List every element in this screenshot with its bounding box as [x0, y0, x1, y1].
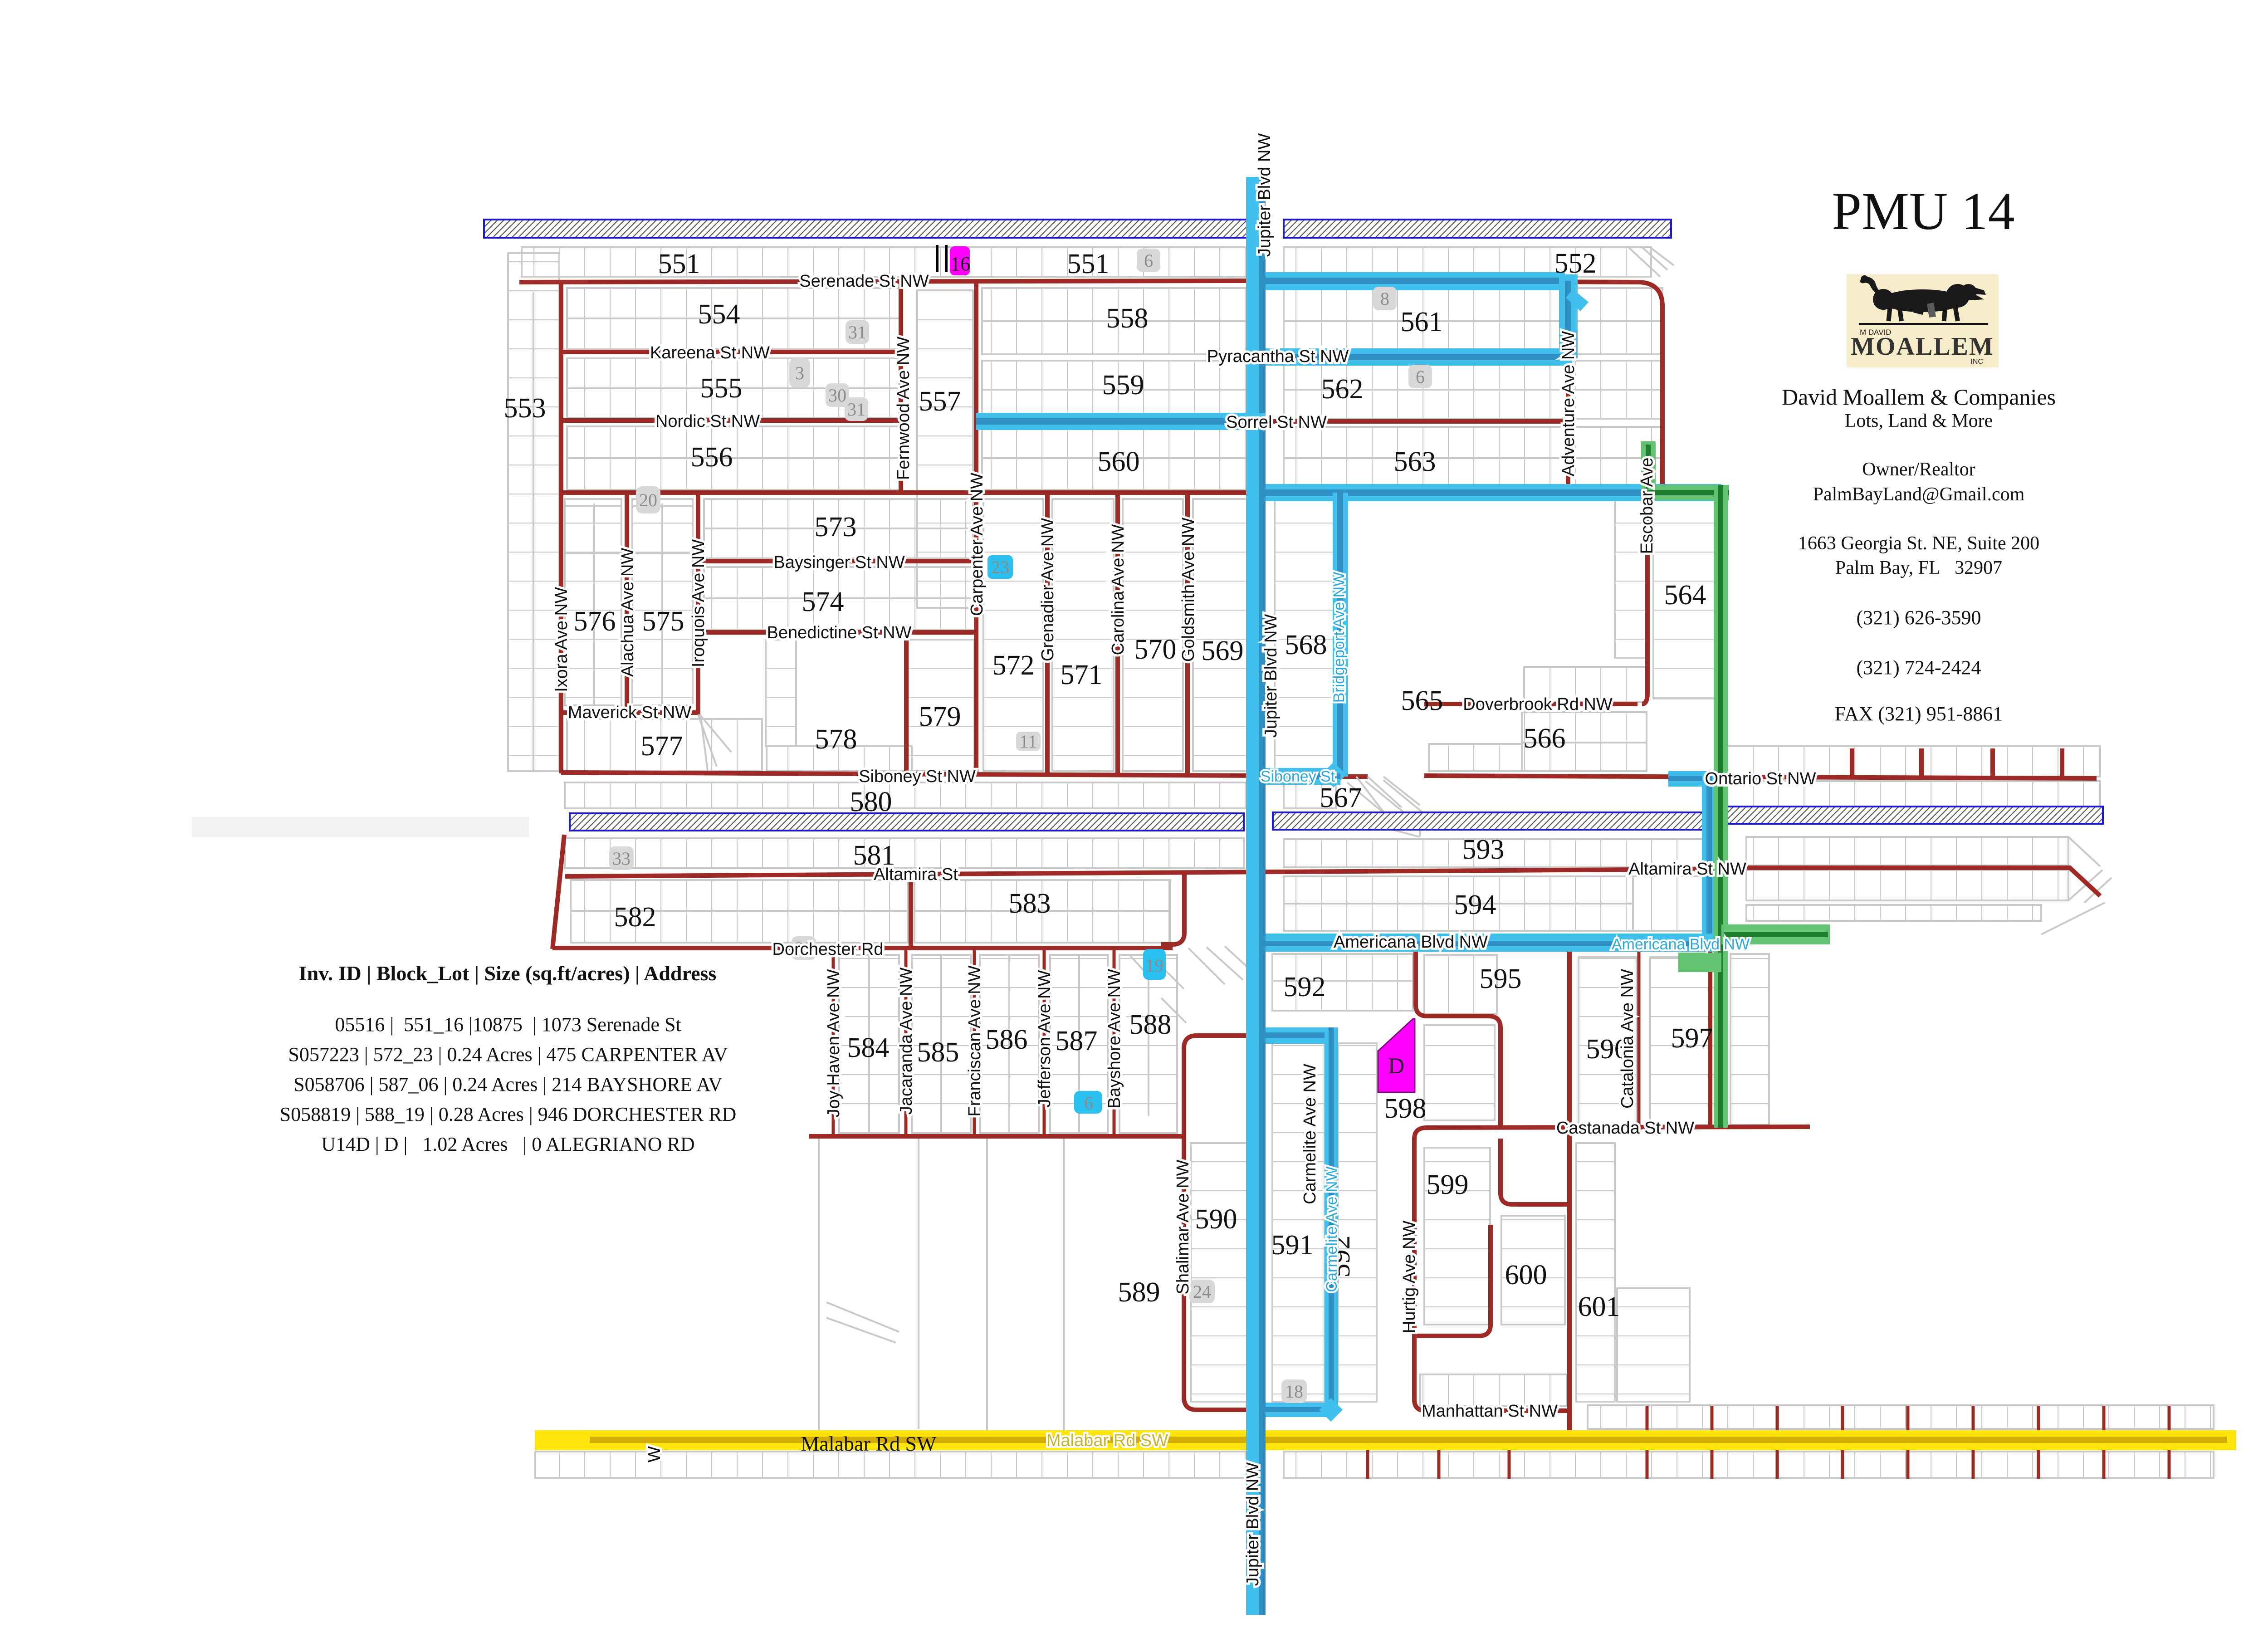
svg-text:1663 Georgia St. NE, Suite 200: 1663 Georgia St. NE, Suite 200	[1798, 533, 2039, 554]
svg-text:571: 571	[1061, 660, 1103, 690]
svg-text:Siboney St: Siboney St	[1261, 768, 1335, 785]
svg-text:575: 575	[642, 606, 684, 637]
svg-text:6: 6	[1084, 1093, 1093, 1113]
svg-text:553: 553	[504, 393, 546, 424]
svg-text:(321) 724-2424: (321) 724-2424	[1857, 656, 1981, 679]
svg-text:20: 20	[639, 490, 657, 510]
svg-text:(321) 626-3590: (321) 626-3590	[1857, 606, 1981, 629]
svg-text:560: 560	[1098, 446, 1140, 477]
svg-text:Escobar Ave: Escobar Ave	[1637, 458, 1657, 554]
svg-text:D: D	[1388, 1053, 1404, 1078]
svg-text:585: 585	[917, 1037, 959, 1068]
svg-text:573: 573	[815, 512, 857, 543]
svg-text:591: 591	[1271, 1230, 1314, 1261]
svg-text:587: 587	[1056, 1026, 1098, 1056]
svg-text:19: 19	[1145, 955, 1163, 976]
svg-text:599: 599	[1427, 1169, 1469, 1200]
svg-text:554: 554	[698, 299, 740, 330]
svg-text:MOALLEM: MOALLEM	[1851, 332, 1994, 361]
svg-text:Fernwood Ave NW: Fernwood Ave NW	[894, 337, 913, 480]
svg-text:577: 577	[641, 731, 683, 762]
svg-text:Pyracantha St NW: Pyracantha St NW	[1207, 347, 1349, 366]
svg-text:Doverbrook Rd NW: Doverbrook Rd NW	[1463, 695, 1613, 714]
svg-text:565: 565	[1401, 685, 1443, 716]
svg-text:S057223 | 572_23 | 0.24 Acres: S057223 | 572_23 | 0.24 Acres | 475 CARP…	[288, 1043, 728, 1066]
svg-text:Carpenter Ave NW: Carpenter Ave NW	[968, 473, 987, 616]
svg-text:Jupiter Blvd NW: Jupiter Blvd NW	[1255, 133, 1274, 257]
svg-text:Jacaranda Ave NW: Jacaranda Ave NW	[897, 968, 916, 1115]
svg-text:Bridgeport Ave NW: Bridgeport Ave NW	[1330, 572, 1348, 703]
svg-text:Ontario St NW: Ontario St NW	[1705, 769, 1816, 788]
svg-text:Manhattan St NW: Manhattan St NW	[1422, 1402, 1558, 1421]
svg-text:559: 559	[1102, 370, 1144, 401]
svg-text:Goldsmith Ave NW: Goldsmith Ave NW	[1179, 518, 1198, 662]
svg-text:563: 563	[1394, 446, 1436, 477]
svg-text:600: 600	[1505, 1260, 1547, 1291]
svg-text:Adventure Ave NW: Adventure Ave NW	[1559, 331, 1578, 476]
svg-text:S058819 | 588_19 | 0.28 Acres: S058819 | 588_19 | 0.28 Acres | 946 DORC…	[280, 1103, 737, 1125]
svg-text:Americana Blvd NW: Americana Blvd NW	[1334, 933, 1488, 952]
svg-text:584: 584	[847, 1032, 890, 1063]
svg-text:18: 18	[1285, 1381, 1303, 1402]
svg-text:Carmelite Ave NW: Carmelite Ave NW	[1323, 1166, 1340, 1292]
svg-text:551: 551	[658, 249, 700, 279]
svg-text:31: 31	[847, 399, 865, 420]
svg-text:Alachua Ave NW: Alachua Ave NW	[618, 548, 637, 677]
svg-text:PMU 14: PMU 14	[1832, 181, 2014, 241]
svg-text:05516 | 551_16 |10875 | 1073: 05516 | 551_16 |10875 | 1073 Serenade St	[335, 1013, 681, 1036]
svg-text:576: 576	[574, 606, 616, 637]
svg-text:570: 570	[1134, 634, 1177, 665]
svg-text:558: 558	[1106, 303, 1149, 334]
svg-text:16: 16	[950, 253, 970, 275]
svg-text:W: W	[645, 1446, 664, 1462]
svg-text:Baysinger St NW: Baysinger St NW	[773, 553, 904, 572]
svg-text:593: 593	[1462, 834, 1505, 865]
svg-text:INC: INC	[1970, 358, 1983, 366]
svg-text:564: 564	[1664, 580, 1706, 611]
svg-text:Jefferson Ave NW: Jefferson Ave NW	[1035, 970, 1054, 1108]
svg-text:556: 556	[691, 442, 733, 473]
svg-text:601: 601	[1578, 1291, 1620, 1322]
svg-text:Altamira St: Altamira St	[874, 865, 958, 884]
svg-text:David Moallem & Companies: David Moallem & Companies	[1782, 384, 2056, 410]
svg-text:Maverick St NW: Maverick St NW	[568, 703, 691, 722]
svg-text:598: 598	[1384, 1093, 1427, 1124]
svg-text:Benedictine St NW: Benedictine St NW	[767, 623, 912, 642]
svg-text:Inv. ID | Block_Lot | Size (sq: Inv. ID | Block_Lot | Size (sq.ft/acres)…	[299, 962, 717, 985]
svg-text:583: 583	[1009, 888, 1051, 919]
svg-text:24: 24	[1193, 1281, 1211, 1302]
svg-text:Serenade St NW: Serenade St NW	[799, 272, 929, 291]
svg-text:8: 8	[1380, 288, 1389, 309]
svg-text:Malabar Rd SW: Malabar Rd SW	[1046, 1431, 1168, 1450]
svg-text:6: 6	[1144, 250, 1153, 271]
svg-text:595: 595	[1480, 963, 1522, 994]
svg-text:Palm Bay, FL 32907: Palm Bay, FL 32907	[1835, 557, 2002, 578]
svg-text:Altamira St NW: Altamira St NW	[1628, 860, 1746, 879]
svg-text:592: 592	[1284, 972, 1326, 1002]
svg-text:572: 572	[992, 650, 1035, 681]
svg-text:557: 557	[919, 386, 961, 417]
svg-text:590: 590	[1195, 1204, 1237, 1235]
svg-text:Nordic St NW: Nordic St NW	[655, 412, 760, 431]
svg-text:Catalonia Ave NW: Catalonia Ave NW	[1618, 969, 1637, 1109]
svg-text:33: 33	[612, 848, 631, 869]
svg-text:3: 3	[795, 363, 804, 383]
svg-text:Lots, Land & More: Lots, Land & More	[1845, 411, 1993, 431]
svg-text:552: 552	[1554, 248, 1597, 279]
svg-text:23: 23	[991, 557, 1009, 577]
svg-text:579: 579	[919, 701, 961, 732]
svg-text:Carolina Ave NW: Carolina Ave NW	[1109, 524, 1128, 655]
svg-text:31: 31	[848, 322, 866, 342]
svg-text:U14D | D | 1.02 Acres | 0: U14D | D | 1.02 Acres | 0 ALEGRIANO RD	[321, 1133, 694, 1155]
svg-text:Franciscan Ave NW: Franciscan Ave NW	[965, 965, 984, 1116]
svg-text:582: 582	[614, 902, 656, 933]
svg-text:30: 30	[828, 385, 846, 406]
svg-text:PalmBayLand@Gmail.com: PalmBayLand@Gmail.com	[1813, 484, 2025, 505]
svg-text:FAX (321) 951-8861: FAX (321) 951-8861	[1835, 703, 2003, 725]
svg-text:566: 566	[1524, 723, 1566, 754]
svg-text:562: 562	[1321, 374, 1364, 405]
svg-text:567: 567	[1320, 782, 1362, 813]
svg-text:586: 586	[986, 1024, 1028, 1055]
svg-text:Siboney St NW: Siboney St NW	[859, 767, 976, 786]
svg-text:Castanada St NW: Castanada St NW	[1556, 1119, 1694, 1138]
svg-text:6: 6	[1416, 367, 1425, 387]
svg-text:589: 589	[1118, 1277, 1160, 1308]
svg-text:580: 580	[850, 787, 892, 817]
svg-text:Carmelite Ave NW: Carmelite Ave NW	[1300, 1064, 1320, 1204]
svg-text:Bayshore Ave NW: Bayshore Ave NW	[1105, 969, 1124, 1109]
svg-text:597: 597	[1671, 1023, 1713, 1054]
svg-text:561: 561	[1401, 307, 1443, 337]
svg-text:Malabar Rd SW: Malabar Rd SW	[801, 1432, 937, 1455]
svg-text:555: 555	[700, 373, 743, 404]
svg-text:Joy Haven Ave NW: Joy Haven Ave NW	[824, 969, 843, 1118]
svg-text:Sorrel St NW: Sorrel St NW	[1226, 413, 1327, 432]
svg-text:574: 574	[802, 587, 844, 617]
svg-text:594: 594	[1454, 890, 1496, 920]
svg-text:Dorchester Rd: Dorchester Rd	[772, 940, 884, 959]
svg-text:11: 11	[1020, 731, 1037, 752]
svg-text:Jupiter Blvd NW: Jupiter Blvd NW	[1261, 614, 1281, 738]
svg-text:Owner/Realtor: Owner/Realtor	[1862, 459, 1975, 480]
svg-text:569: 569	[1202, 636, 1244, 666]
svg-text:Kareena St NW: Kareena St NW	[650, 343, 770, 362]
svg-text:Grenadier Ave NW: Grenadier Ave NW	[1038, 518, 1057, 661]
svg-text:Ixora Ave NW: Ixora Ave NW	[552, 587, 571, 692]
svg-text:Hurtig Ave NW: Hurtig Ave NW	[1400, 1221, 1419, 1334]
svg-text:588: 588	[1129, 1009, 1172, 1040]
svg-text:568: 568	[1285, 630, 1327, 660]
svg-text:551: 551	[1067, 249, 1110, 279]
svg-text:Shalimar Ave NW: Shalimar Ave NW	[1173, 1159, 1193, 1294]
svg-text:S058706 | 587_06 | 0.24 Acres: S058706 | 587_06 | 0.24 Acres | 214 BAYS…	[293, 1073, 723, 1095]
svg-text:Jupiter Blvd NW: Jupiter Blvd NW	[1243, 1462, 1262, 1586]
svg-text:Americana Blvd NW: Americana Blvd NW	[1612, 936, 1750, 953]
svg-text:Iroquois Ave NW: Iroquois Ave NW	[689, 539, 708, 667]
svg-text:578: 578	[815, 724, 857, 755]
